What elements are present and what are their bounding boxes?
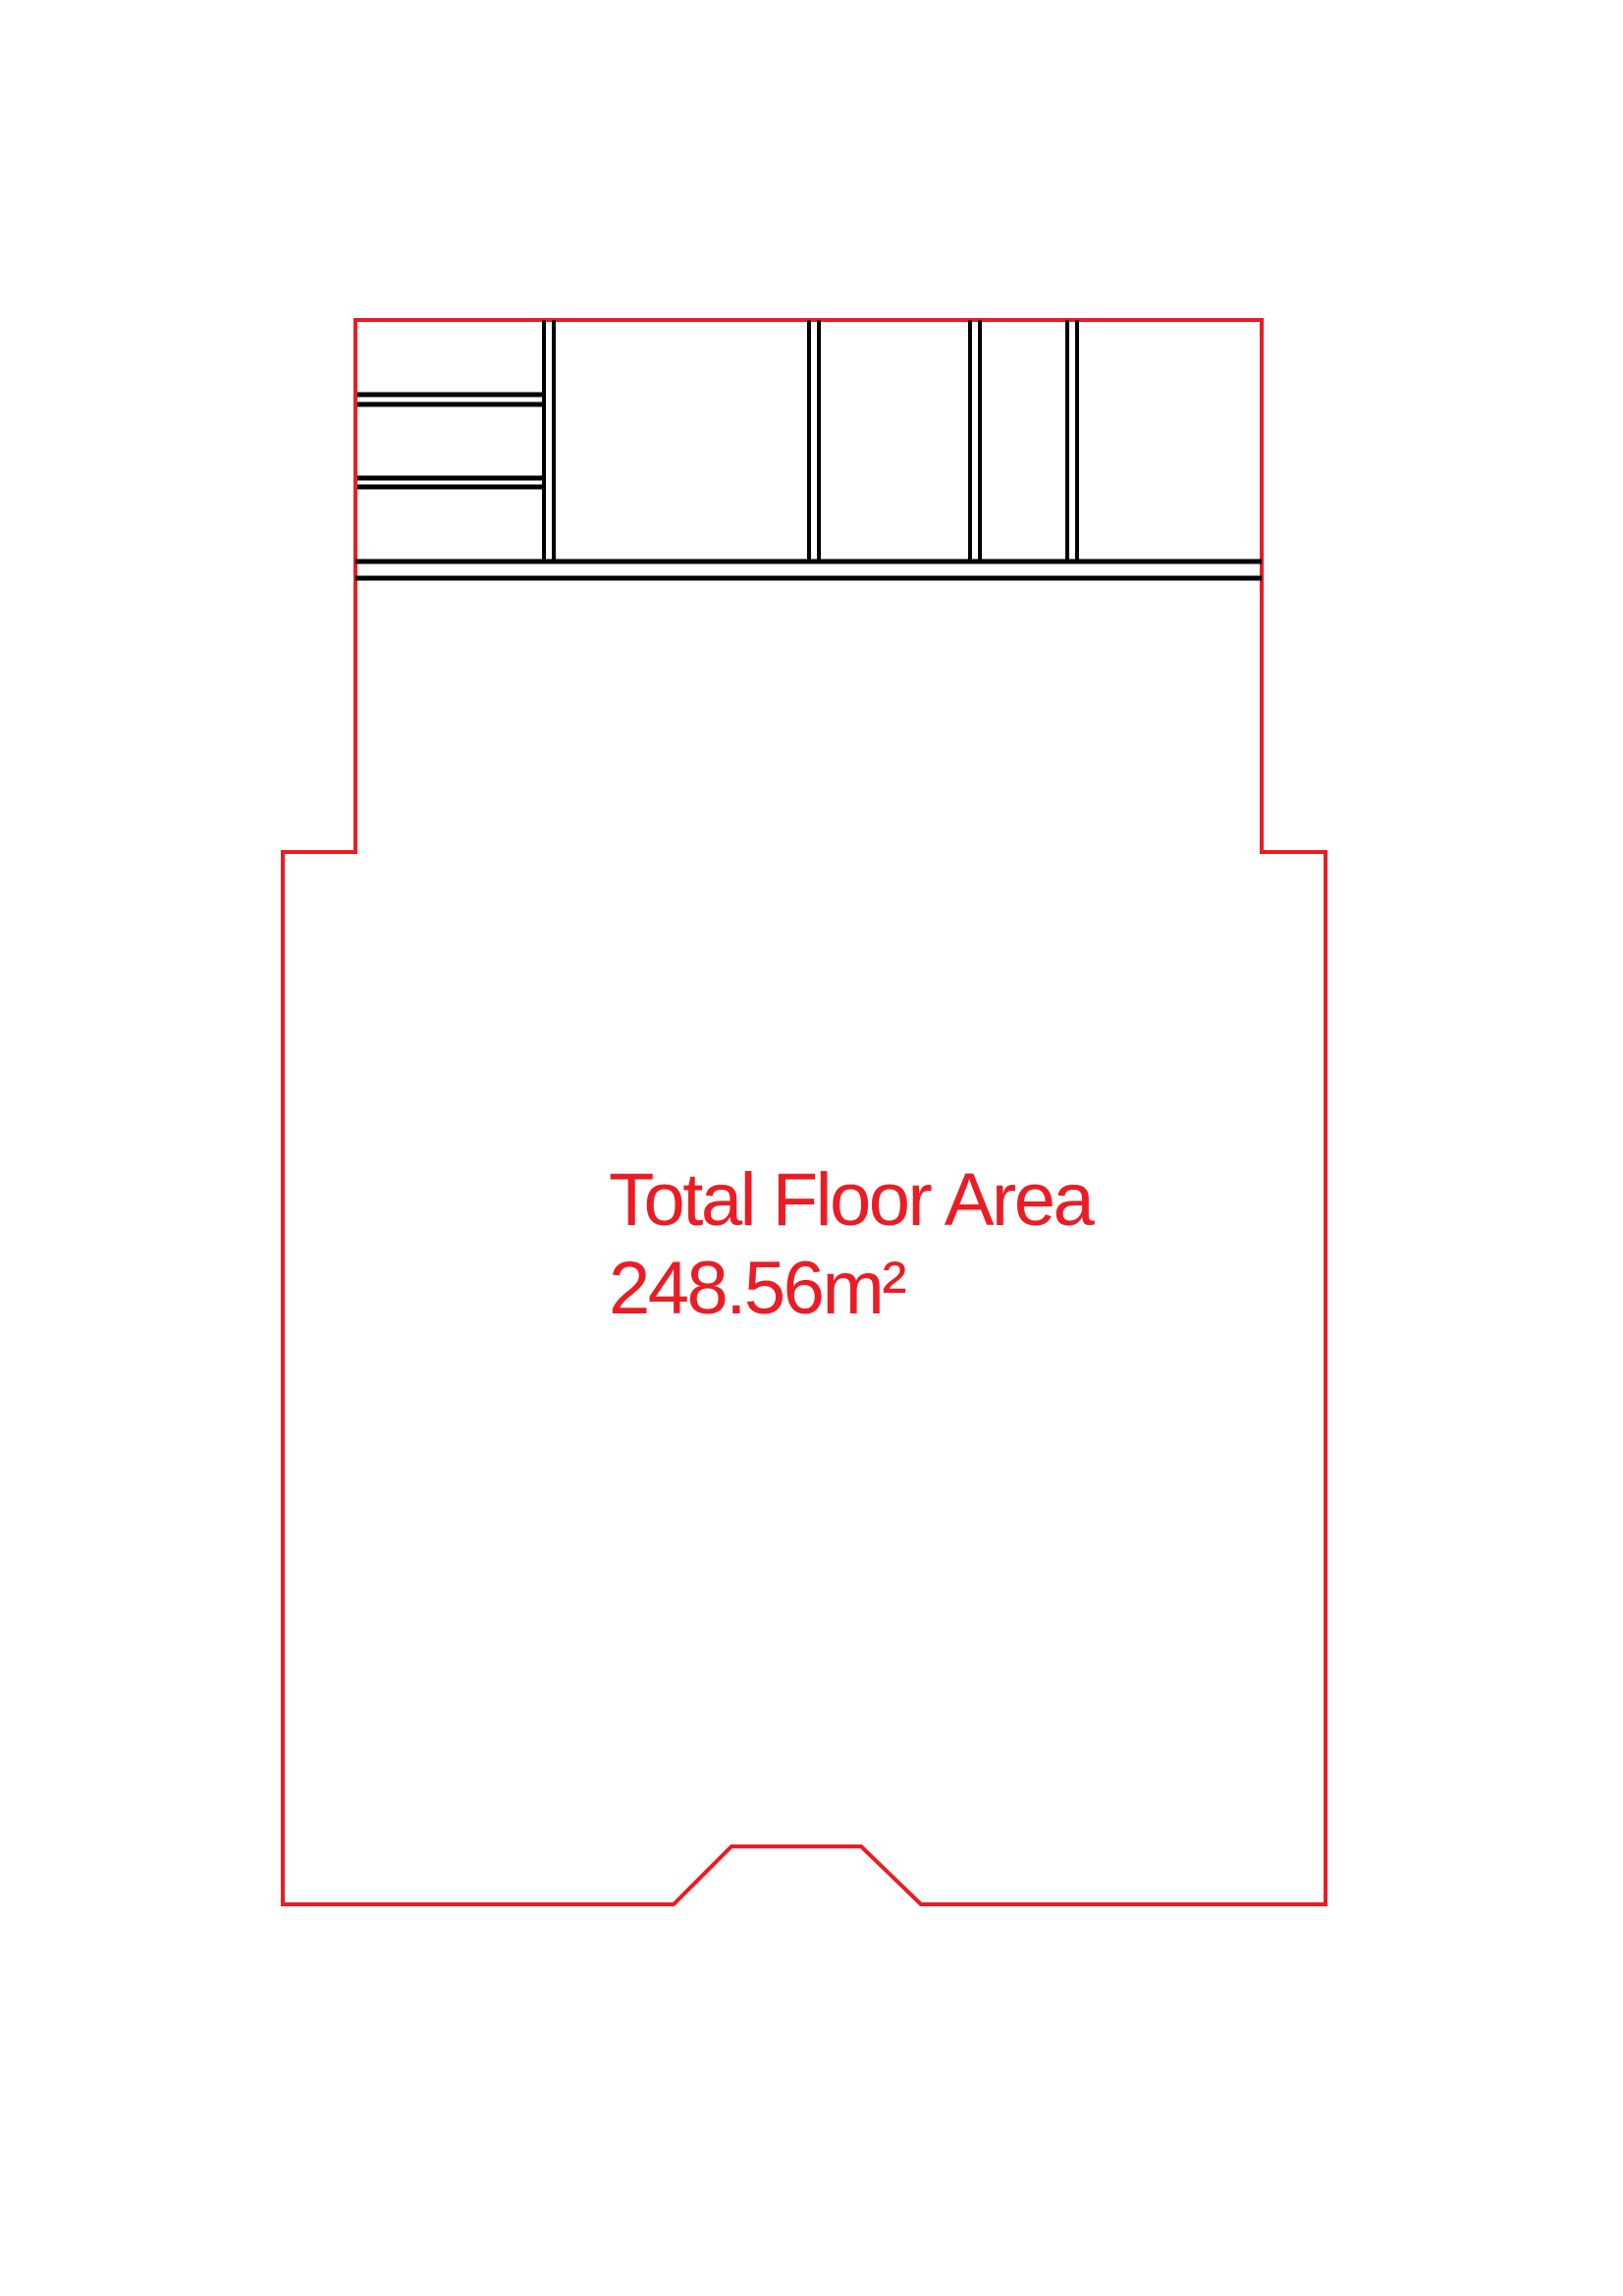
floor-plan-page: Total Floor Area 248.56m² xyxy=(0,0,1623,2296)
total-floor-area-label: Total Floor Area 248.56m² xyxy=(609,1156,1092,1333)
cabinet-partition-lines xyxy=(355,320,1262,578)
total-floor-area-value: 248.56m² xyxy=(609,1245,1092,1333)
floor-plan-svg xyxy=(0,0,1623,2296)
floor-outline xyxy=(283,320,1325,1904)
total-floor-area-title: Total Floor Area xyxy=(609,1156,1092,1245)
